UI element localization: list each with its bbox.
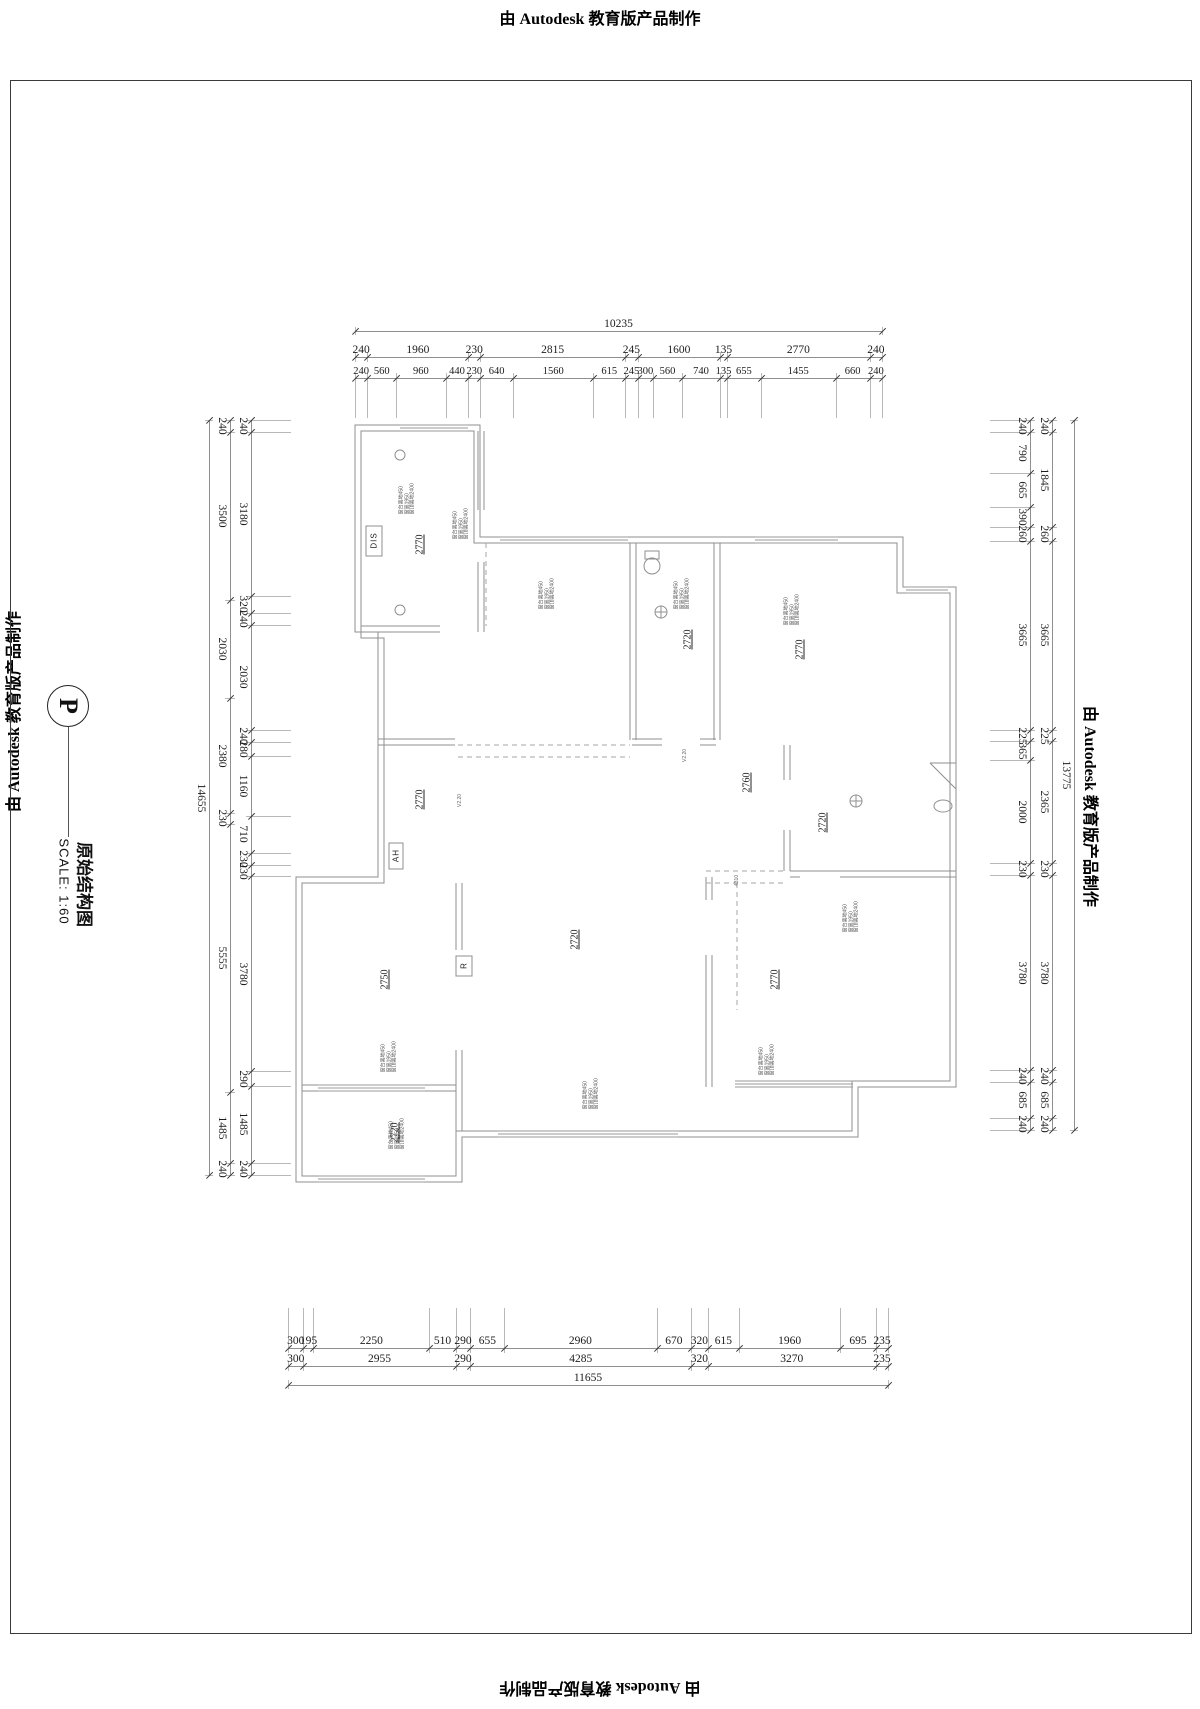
room-height-label: 2750 [380, 960, 391, 1000]
dim-value: 2000 [1015, 782, 1027, 842]
corner-shelf [930, 763, 956, 789]
dim-value: 2250 [341, 1336, 401, 1347]
room-height-label: 2720 [570, 920, 581, 960]
dim-value: 240 [1037, 396, 1049, 456]
dim-value: 3780 [1015, 943, 1027, 1003]
dim-value: 3780 [236, 944, 248, 1004]
room-height-label: 2770 [415, 780, 426, 820]
floor-drain-icon [850, 795, 862, 807]
dim-value: 240 [1015, 1094, 1027, 1154]
micro-label: V2.20 [682, 734, 688, 762]
window-annotation: 窗台离地450窗高1950窗顶离地2400 [785, 569, 802, 625]
dim-value: 235 [852, 1336, 912, 1347]
window-annotation: 窗台离地450窗高1950窗顶离地2400 [844, 876, 861, 932]
dim-value: 230 [236, 841, 248, 901]
dim-value: 240 [846, 366, 906, 377]
dim-value: 3180 [236, 484, 248, 544]
dim-value: 230 [1037, 839, 1049, 899]
dim-value: 2960 [550, 1336, 610, 1347]
dim-ext [246, 876, 291, 877]
dim-ext [246, 432, 291, 433]
window-annotation: 窗台离地450窗高1950窗顶离地2400 [454, 483, 471, 539]
dim-chain-line [209, 420, 210, 1175]
dim-value: 2380 [215, 726, 227, 786]
dim-value: 365 [1015, 721, 1027, 781]
dim-value: 655 [457, 1336, 517, 1347]
dim-value: 640 [467, 366, 527, 377]
dim-value: 2815 [523, 345, 583, 356]
dim-value: 230 [444, 345, 504, 356]
room-height-label: 2770 [795, 630, 806, 670]
window-annotation: 窗台离地450窗高1950窗顶离地2400 [382, 1016, 399, 1072]
dim-value: 240 [846, 345, 906, 356]
windows [318, 425, 948, 1182]
appliance-label: R [460, 951, 469, 981]
dim-value: 290 [433, 1354, 493, 1365]
room-height-label: 2770 [770, 960, 781, 1000]
dim-value: 230 [215, 788, 227, 848]
dim-value: 1960 [760, 1336, 820, 1347]
dim-value: 1455 [768, 366, 828, 377]
dim-chain-line [355, 331, 882, 332]
window-annotation: 窗台离地450窗高1950窗顶离地2400 [584, 1053, 601, 1109]
dim-value: 2955 [350, 1354, 410, 1365]
dim-value: 260 [1015, 504, 1027, 564]
room-height-label: 2720 [683, 620, 694, 660]
dim-value: 240 [215, 396, 227, 456]
dim-value: 2365 [1037, 772, 1049, 832]
drawing-sheet: 由 Autodesk 教育版产品制作 由 Autodesk 教育版产品制作 由 … [0, 0, 1200, 1709]
dim-value: 4285 [551, 1354, 611, 1365]
window-annotation: 窗台离地450窗高1950窗顶离地2400 [675, 553, 692, 609]
dim-value: 1845 [1037, 450, 1049, 510]
basin [934, 800, 952, 812]
dim-ext [246, 756, 291, 757]
appliance-label: DIS [370, 526, 379, 556]
dim-value: 240 [236, 396, 248, 456]
room-height-label: 2720 [818, 803, 829, 843]
dim-value: 615 [693, 1336, 753, 1347]
dim-chain-line [1074, 420, 1075, 1130]
dim-value: 240 [215, 1139, 227, 1199]
dim-value: 240 [236, 589, 248, 649]
room-height-label: 2770 [415, 525, 426, 565]
floor-drain-icon [655, 606, 667, 618]
dim-value: 2030 [236, 647, 248, 707]
dim-value: 230 [1015, 839, 1027, 899]
dim-value: 5555 [215, 928, 227, 988]
dim-chain-line [288, 1385, 888, 1386]
dim-value: 3780 [1037, 943, 1049, 1003]
dim-chain-line [288, 1348, 888, 1349]
micro-label: 4310 [734, 858, 740, 886]
dim-chain-line [230, 420, 231, 1175]
dim-value: 240 [1037, 1094, 1049, 1154]
window-annotation: 窗台离地450窗高1950窗顶离地2400 [390, 1093, 407, 1149]
dim-value: 195 [278, 1336, 338, 1347]
interior-walls [302, 431, 956, 1131]
dim-chain-line [251, 420, 252, 1175]
column-circle [395, 605, 405, 615]
appliance-label: AH [392, 841, 401, 871]
dim-value: 3665 [1015, 605, 1027, 665]
room-height-label: 2760 [742, 763, 753, 803]
dashed-lines [458, 543, 784, 1010]
dim-value: 3270 [762, 1354, 822, 1365]
dim-value: 1560 [523, 366, 583, 377]
dim-value: 3500 [215, 486, 227, 546]
dim-value: 235 [852, 1354, 912, 1365]
dim-chain-line [355, 378, 882, 379]
dim-value: 260 [1037, 504, 1049, 564]
dim-value: 1960 [388, 345, 448, 356]
dim-value: 240 [331, 345, 391, 356]
dim-value: 14655 [194, 768, 206, 828]
dim-value: 240 [236, 1139, 248, 1199]
dim-value: 13775 [1059, 745, 1071, 805]
dim-ext [593, 373, 594, 418]
dim-value: 10235 [589, 319, 649, 330]
micro-label: V2.20 [457, 779, 463, 807]
dim-value: 655 [714, 366, 774, 377]
dim-value: 2770 [768, 345, 828, 356]
dim-value: 135 [694, 345, 754, 356]
dim-value: 225 [1037, 706, 1049, 766]
dim-chain-line [355, 357, 882, 358]
dim-value: 320 [669, 1354, 729, 1365]
dim-value: 3665 [1037, 605, 1049, 665]
dim-value: 11655 [558, 1373, 618, 1384]
toilet [644, 558, 660, 574]
dim-ext [367, 373, 368, 418]
window-annotation: 窗台离地450窗高1950窗顶离地2400 [540, 553, 557, 609]
window-annotation: 窗台离地450窗高1950窗顶离地2400 [760, 1019, 777, 1075]
dim-value: 2030 [215, 619, 227, 679]
dim-value: 300 [266, 1354, 326, 1365]
dim-chain-line [288, 1366, 888, 1367]
window-annotation: 窗台离地450窗高1950窗顶离地2400 [400, 458, 417, 514]
